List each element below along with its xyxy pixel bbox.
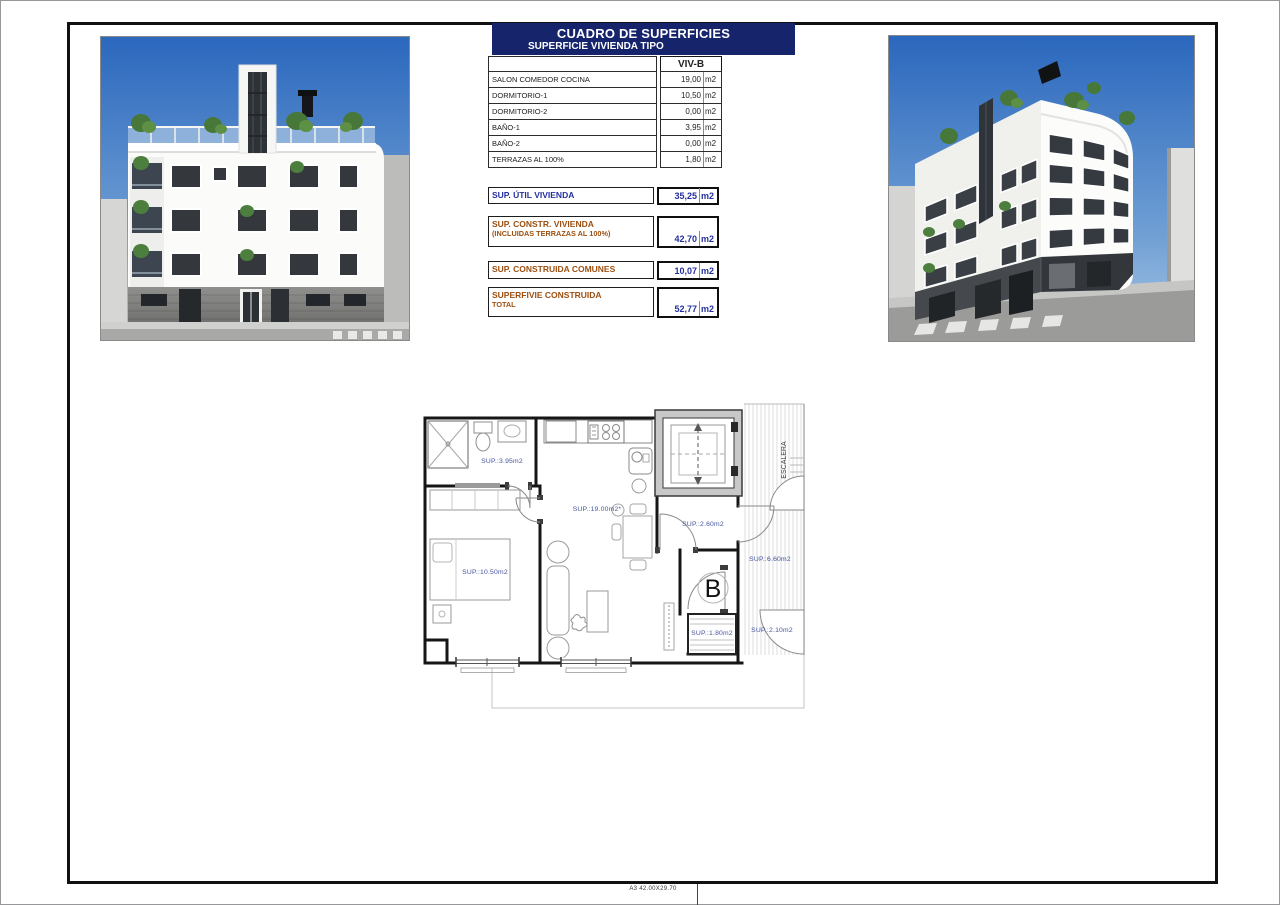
- table-subtitle: SUPERFICIE VIVIENDA TIPO: [528, 41, 795, 52]
- summary-row-util: SUP. ÚTIL VIVIENDA 35,25m2: [488, 187, 719, 205]
- label-terrace: SUP.:1.80m2: [691, 630, 733, 637]
- table-title: CUADRO DE SUPERFICIES: [492, 23, 795, 41]
- summary-row-comunes: SUP. CONSTRUIDA COMUNES 10,07m2: [488, 261, 719, 280]
- label-hall: SUP.:2.60m2: [682, 521, 724, 528]
- label-entry: SUP.:2.10m2: [751, 627, 793, 634]
- ground-floor: [128, 287, 384, 327]
- label-living: SUP.:19.00m2*: [573, 506, 622, 513]
- windows: [456, 657, 631, 673]
- column-header: VIV-B: [660, 56, 722, 72]
- balcony-column: [130, 156, 164, 287]
- door-jambs: [455, 482, 728, 614]
- building-render-front-elevation: [100, 36, 410, 341]
- table-row: BAÑO-2 0,00m2: [488, 135, 799, 152]
- stair-tower: [239, 65, 276, 153]
- drawing-sheet: CUADRO DE SUPERFICIES SUPERFICIE VIVIEND…: [0, 0, 1280, 905]
- sofa-group: [547, 541, 608, 659]
- table-row: TERRAZAS AL 100% 1,80m2: [488, 151, 799, 168]
- label-bathroom: SUP.:3.95m2: [481, 458, 523, 465]
- table-row: DORMITORIO-1 10,50m2: [488, 87, 799, 104]
- table-row: SALON COMEDOR COCINA 19,00m2: [488, 71, 799, 88]
- table-row: DORMITORIO-2 0,00m2: [488, 103, 799, 120]
- paper-size-note: A3 42.00X29.70: [613, 886, 693, 892]
- elevator-shaft: [655, 410, 742, 496]
- unit-letter: B: [705, 575, 722, 603]
- floor-plan: B SUP.:3.95m2 SUP.:19.00m2* SUP.:10.50m2…: [420, 402, 810, 714]
- label-landing: SUP.:6.60m2: [749, 556, 791, 563]
- dining-set: [612, 504, 652, 570]
- summary-row-total: SUPERFIVIE CONSTRUIDA TOTAL 52,77m2: [488, 287, 719, 318]
- surface-table-header: CUADRO DE SUPERFICIES SUPERFICIE VIVIEND…: [492, 23, 795, 55]
- surface-table: CUADRO DE SUPERFICIES SUPERFICIE VIVIEND…: [487, 23, 799, 168]
- building-render-corner-perspective: [888, 35, 1195, 342]
- kitchen-fixtures: [544, 420, 652, 493]
- table-row-header: VIV-B: [488, 56, 799, 72]
- label-bedroom: SUP.:10.50m2: [462, 569, 508, 576]
- summary-row-constr: SUP. CONSTR. VIVIENDA (INCLUIDAS TERRAZA…: [488, 216, 719, 248]
- bedroom-furniture: [430, 490, 520, 623]
- table-row: BAÑO-1 3,95m2: [488, 119, 799, 136]
- left-neighbor-wall: [101, 199, 127, 329]
- street: [101, 322, 409, 340]
- title-block-divider: [697, 884, 698, 905]
- surface-grid: VIV-B SALON COMEDOR COCINA 19,00m2 DORMI…: [488, 56, 799, 168]
- label-stairs: ESCALERA: [781, 441, 788, 479]
